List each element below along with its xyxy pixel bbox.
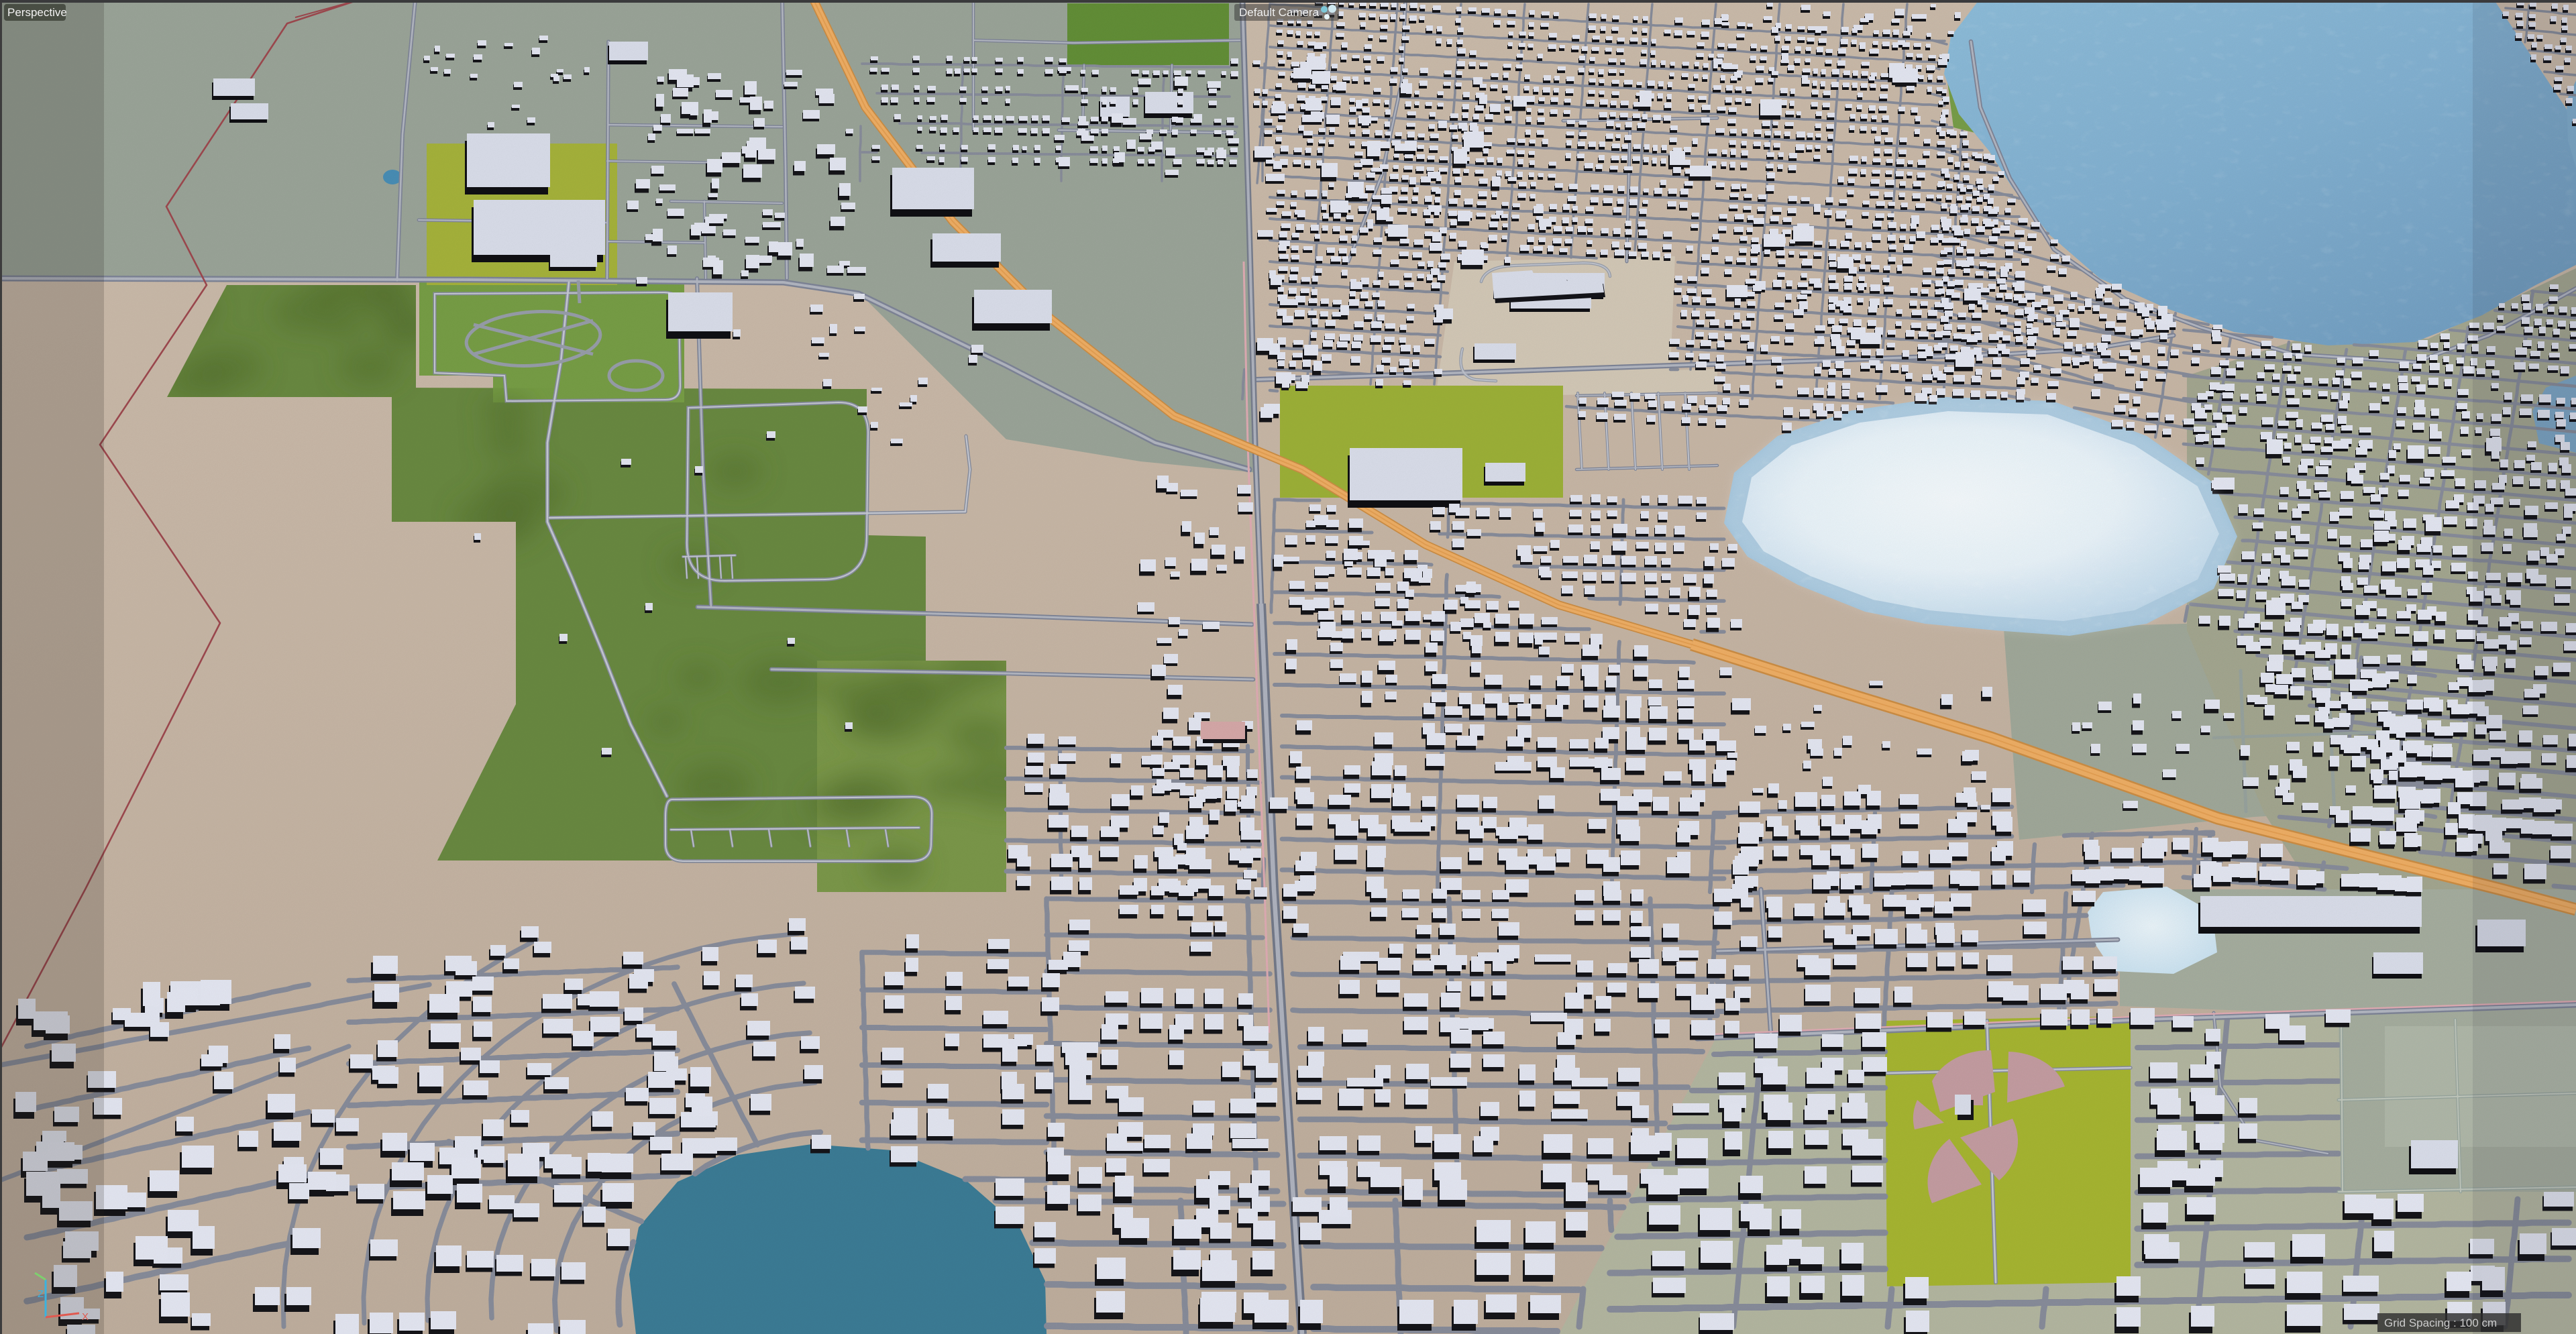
- svg-text:Perspective: Perspective: [7, 6, 67, 19]
- svg-text:X: X: [82, 1311, 89, 1323]
- svg-text:Default Camera: Default Camera: [1239, 6, 1320, 19]
- svg-text:Grid Spacing : 100 cm: Grid Spacing : 100 cm: [2384, 1317, 2497, 1329]
- svg-text:Z: Z: [38, 1288, 44, 1300]
